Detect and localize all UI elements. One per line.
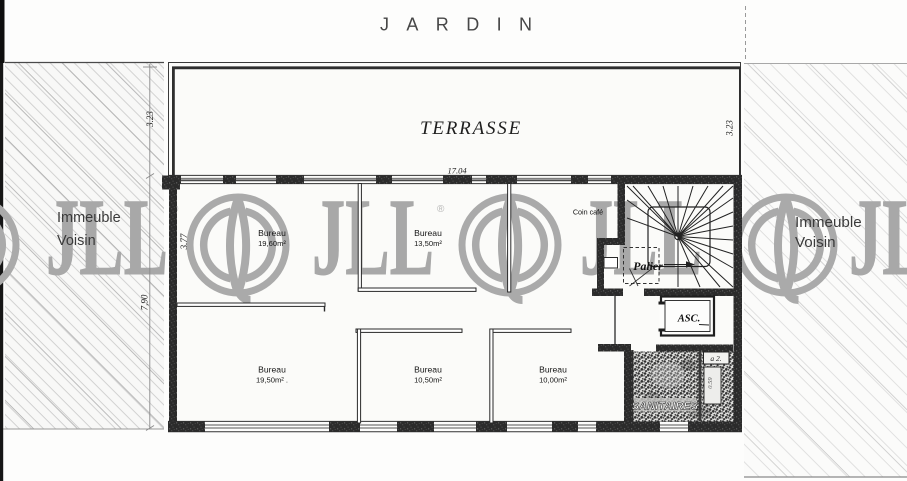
svg-text:19,60m²: 19,60m² xyxy=(258,239,286,248)
svg-text:19,50m² .: 19,50m² . xyxy=(256,375,288,384)
svg-text:JARDIN: JARDIN xyxy=(380,15,549,35)
svg-text:SANITAIRES: SANITAIRES xyxy=(632,401,699,413)
svg-text:Immeuble: Immeuble xyxy=(57,210,121,226)
svg-text:Bureau: Bureau xyxy=(539,365,567,375)
svg-text:®: ® xyxy=(437,204,445,215)
svg-text:Voisin: Voisin xyxy=(795,234,836,251)
svg-text:TERRASSE: TERRASSE xyxy=(420,118,522,139)
svg-text:Bureau: Bureau xyxy=(414,365,442,375)
svg-text:Bureau: Bureau xyxy=(414,228,442,238)
svg-text:3.77: 3.77 xyxy=(179,233,189,250)
svg-text:17.04: 17.04 xyxy=(447,166,467,176)
svg-text:Bureau: Bureau xyxy=(258,228,286,238)
svg-text:3.23: 3.23 xyxy=(145,111,155,128)
svg-text:10,50m²: 10,50m² xyxy=(414,375,442,384)
svg-text:7,90: 7,90 xyxy=(140,294,150,310)
svg-text:13,50m²: 13,50m² xyxy=(414,239,442,248)
svg-text:3.23: 3.23 xyxy=(725,120,735,137)
svg-text:10,00m²: 10,00m² xyxy=(539,375,567,384)
svg-text:Coin café: Coin café xyxy=(573,208,603,217)
svg-text:0.59: 0.59 xyxy=(707,377,714,389)
svg-text:Bureau: Bureau xyxy=(258,365,286,375)
svg-text:JLL: JLL xyxy=(849,176,907,298)
svg-text:a 2.: a 2. xyxy=(710,354,721,363)
svg-text:ASC.: ASC. xyxy=(677,314,700,325)
svg-text:Immeuble: Immeuble xyxy=(795,214,862,231)
svg-text:Voisin: Voisin xyxy=(57,233,96,249)
